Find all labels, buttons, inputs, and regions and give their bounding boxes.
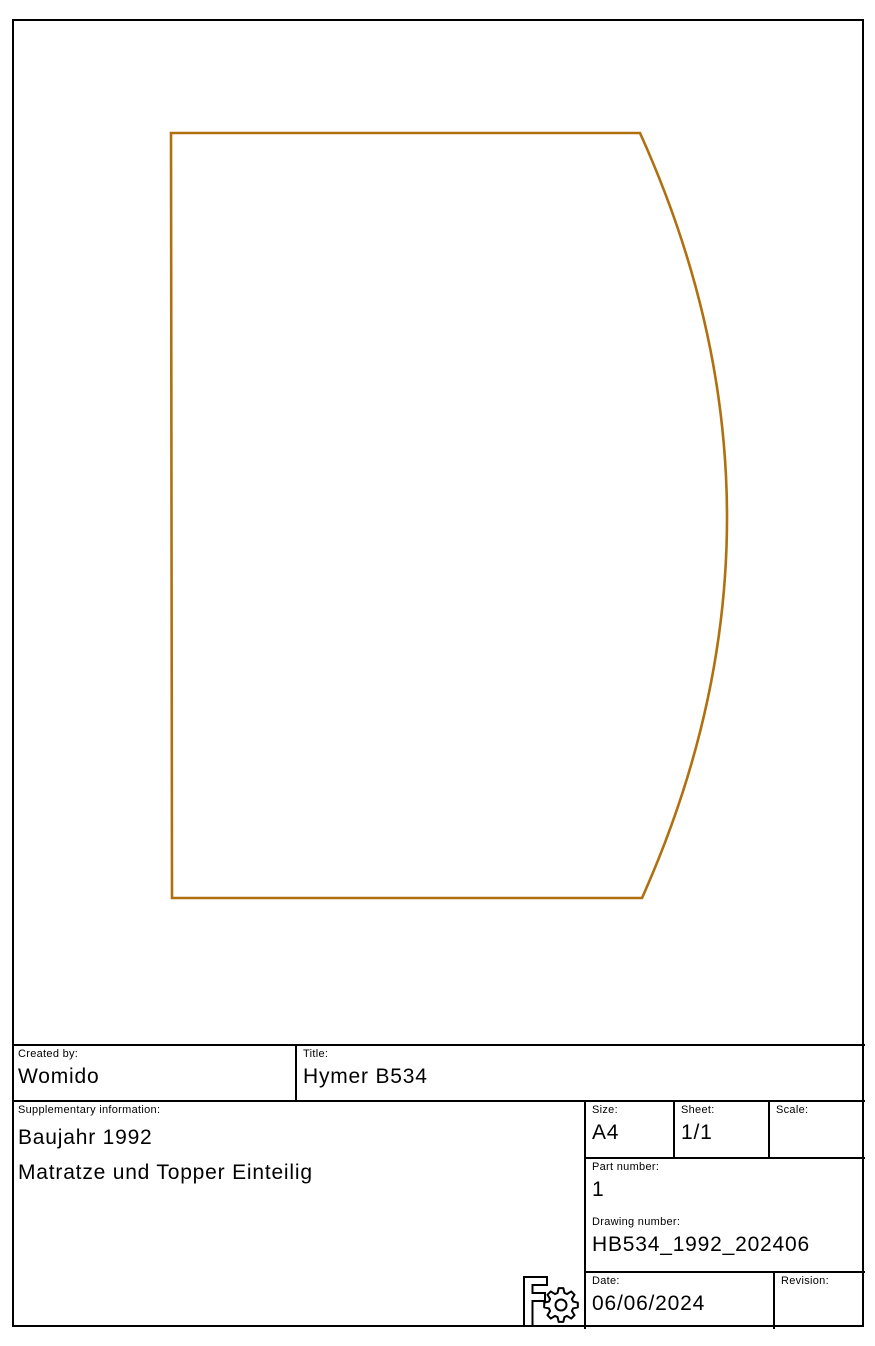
scale-label: Scale: <box>776 1104 861 1117</box>
logo-letter-f <box>524 1277 547 1326</box>
title-cell: Title: Hymer B534 <box>297 1046 865 1102</box>
size-cell: Size: A4 <box>586 1102 675 1159</box>
size-label: Size: <box>592 1104 669 1117</box>
created-by-value: Womido <box>18 1065 291 1089</box>
revision-cell: Revision: <box>775 1273 865 1329</box>
supplementary-line-2: Matratze und Topper Einteilig <box>18 1155 580 1190</box>
mattress-outline-path <box>171 133 727 898</box>
part-and-drawing-number-cell: Part number: 1 Drawing number: HB534_199… <box>586 1159 865 1273</box>
created-by-label: Created by: <box>18 1048 291 1061</box>
drawing-number-label: Drawing number: <box>592 1216 861 1229</box>
drawing-number-value: HB534_1992_202406 <box>592 1233 861 1257</box>
logo-gear-icon <box>544 1288 578 1322</box>
freecad-logo-icon <box>522 1276 584 1328</box>
created-by-cell: Created by: Womido <box>12 1046 297 1102</box>
date-value: 06/06/2024 <box>592 1292 769 1316</box>
sheet-label: Sheet: <box>681 1104 764 1117</box>
scale-cell: Scale: <box>770 1102 865 1159</box>
supplementary-info-cell: Supplementary information: Baujahr 1992 … <box>12 1102 586 1329</box>
date-label: Date: <box>592 1275 769 1288</box>
drawing-sheet: Created by: Womido Title: Hymer B534 Sup… <box>0 0 875 1346</box>
sheet-value: 1/1 <box>681 1121 764 1145</box>
title-block: Created by: Womido Title: Hymer B534 Sup… <box>12 1044 865 1327</box>
title-label: Title: <box>303 1048 861 1061</box>
size-value: A4 <box>592 1121 669 1145</box>
part-number-label: Part number: <box>592 1161 861 1174</box>
supplementary-info-label: Supplementary information: <box>18 1104 580 1117</box>
title-value: Hymer B534 <box>303 1065 861 1089</box>
part-number-value: 1 <box>592 1178 861 1202</box>
date-cell: Date: 06/06/2024 <box>586 1273 775 1329</box>
sheet-cell: Sheet: 1/1 <box>675 1102 770 1159</box>
revision-label: Revision: <box>781 1275 861 1288</box>
supplementary-info-lines: Baujahr 1992 Matratze und Topper Einteil… <box>18 1120 580 1190</box>
supplementary-line-1: Baujahr 1992 <box>18 1120 580 1155</box>
